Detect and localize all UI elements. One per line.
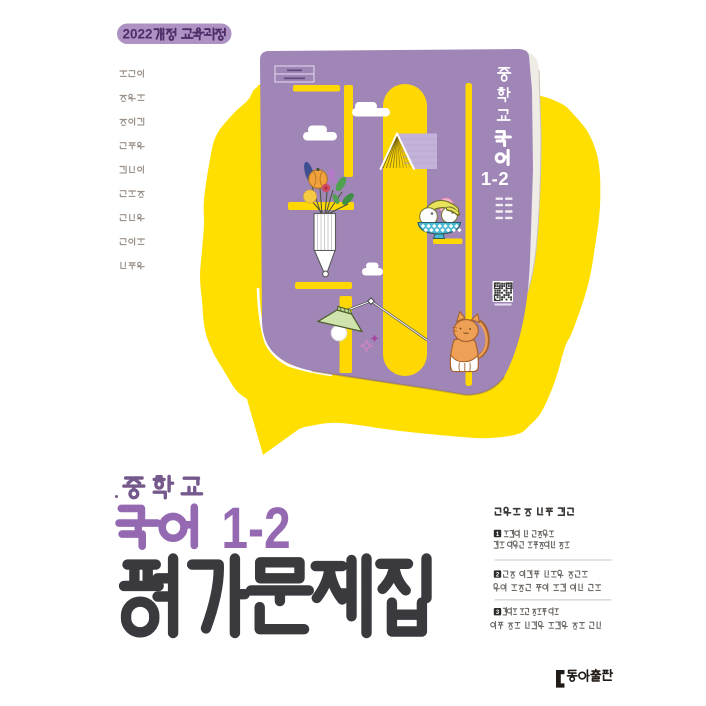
svg-text:2022: 2022 xyxy=(123,27,153,42)
svg-text:1-2: 1-2 xyxy=(221,497,290,562)
svg-text:1-2: 1-2 xyxy=(481,168,509,189)
